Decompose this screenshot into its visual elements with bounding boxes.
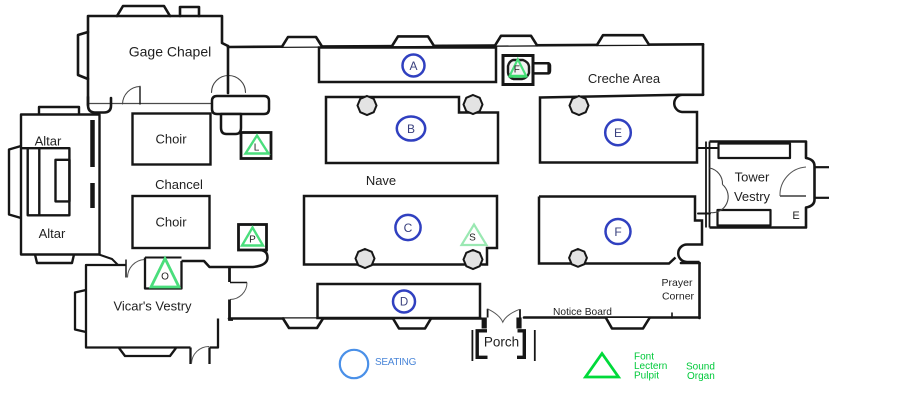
svg-text:Chancel: Chancel bbox=[155, 177, 203, 192]
svg-text:Organ: Organ bbox=[687, 371, 715, 382]
svg-text:Corner: Corner bbox=[662, 291, 695, 303]
svg-text:O: O bbox=[161, 272, 169, 283]
svg-text:Choir: Choir bbox=[155, 215, 187, 230]
svg-text:Vestry: Vestry bbox=[734, 189, 771, 204]
svg-text:F: F bbox=[614, 225, 621, 239]
svg-text:F: F bbox=[514, 65, 520, 76]
svg-text:Notice Board: Notice Board bbox=[553, 307, 612, 318]
svg-text:B: B bbox=[407, 122, 415, 136]
svg-text:Nave: Nave bbox=[366, 173, 396, 188]
svg-text:Vicar's Vestry: Vicar's Vestry bbox=[113, 299, 192, 314]
svg-text:E: E bbox=[792, 210, 799, 222]
svg-text:Porch: Porch bbox=[484, 335, 519, 350]
svg-text:P: P bbox=[249, 235, 256, 246]
svg-text:Tower: Tower bbox=[735, 170, 770, 185]
svg-text:Creche Area: Creche Area bbox=[588, 71, 661, 86]
svg-text:Pulpit: Pulpit bbox=[634, 371, 659, 382]
svg-text:S: S bbox=[469, 233, 476, 244]
svg-text:E: E bbox=[614, 126, 622, 140]
svg-text:Gage Chapel: Gage Chapel bbox=[129, 44, 212, 60]
svg-text:D: D bbox=[400, 297, 408, 309]
svg-text:Prayer: Prayer bbox=[662, 277, 693, 289]
svg-text:Choir: Choir bbox=[155, 132, 187, 147]
svg-text:C: C bbox=[404, 221, 413, 235]
svg-text:Altar: Altar bbox=[35, 134, 62, 149]
svg-text:A: A bbox=[409, 59, 417, 73]
svg-text:Altar: Altar bbox=[39, 226, 66, 241]
svg-text:SEATING: SEATING bbox=[375, 357, 417, 368]
svg-text:L: L bbox=[254, 143, 260, 154]
